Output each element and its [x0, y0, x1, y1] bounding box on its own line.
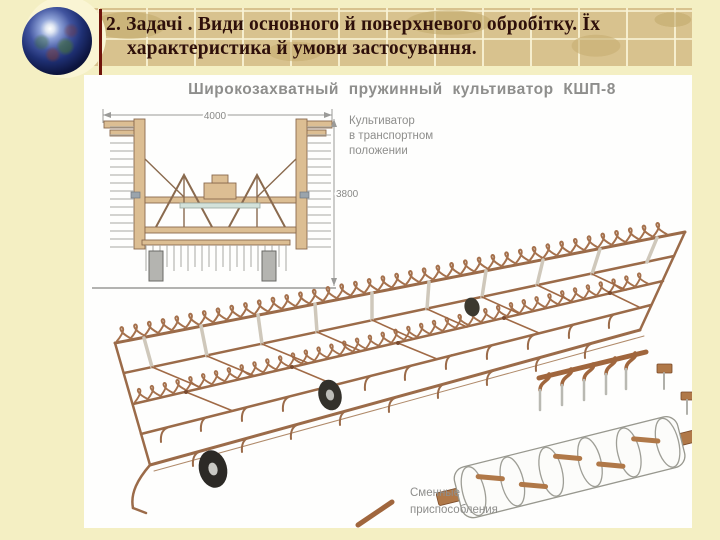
transport-caption-line-1: Культиватор [349, 115, 415, 127]
figure-heading: Широкозахватный пружинный культиватор КШ… [188, 81, 616, 98]
transport-wheel [195, 447, 231, 491]
transport-caption-line-2: в транспортном [349, 130, 433, 142]
content-panel: Широкозахватный пружинный культиватор КШ… [84, 75, 692, 528]
ring-roller-illustration [358, 409, 692, 525]
globe-continents [22, 7, 92, 75]
width-dimension-label: 4000 [204, 111, 227, 122]
cultivator-figure: Широкозахватный пружинный культиватор КШ… [84, 75, 692, 528]
front-view-drawing: 4000 [92, 109, 359, 288]
globe-icon [22, 7, 92, 75]
attachments-caption-line-1: Сменные [410, 487, 460, 499]
slide-title: 2. Задачі . Види основного й поверхневог… [106, 13, 686, 61]
attachments-caption-line-2: приспособления [410, 504, 498, 516]
transport-caption-line-3: положении [349, 145, 408, 157]
slide-title-line-2: характеристика й умови застосування. [106, 37, 686, 61]
transport-position-caption: Культиватор в транспортном положении [349, 115, 433, 157]
height-dimension-label: 3800 [336, 189, 359, 200]
slide-title-line-1: 2. Задачі . Види основного й поверхневог… [106, 13, 686, 37]
slide-background: 2. Задачі . Види основного й поверхневог… [0, 0, 720, 540]
spring-tine-attachment-illustration [539, 352, 692, 414]
title-accent-line [99, 9, 102, 75]
